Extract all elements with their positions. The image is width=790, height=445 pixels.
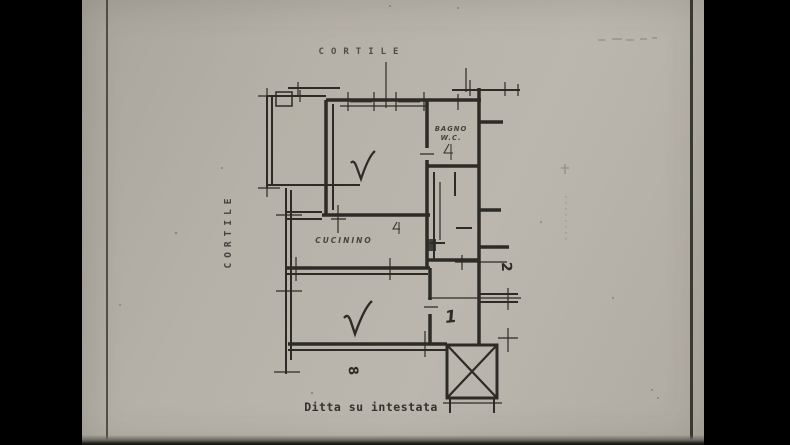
room-number-hall: 1 — [444, 307, 458, 328]
sheet-caption: Ditta su intestata — [304, 400, 438, 414]
scan-noise-smudges — [561, 38, 657, 174]
courtyard-label-side: CORTILE — [223, 193, 234, 268]
checkmark-icon — [344, 301, 372, 334]
tick-marks — [258, 62, 521, 403]
floor-plan-drawing: CORTILE CORTILE CUCININO BAGNO W.C. 1 2 … — [0, 0, 790, 445]
bathroom-label-line2: W.C. — [440, 134, 461, 142]
balcony-corner-square — [276, 92, 292, 106]
walls-medium — [267, 88, 520, 413]
walls-thick — [285, 88, 509, 345]
scanned-photo-canvas: CORTILE CORTILE CUCININO BAGNO W.C. 1 2 … — [0, 0, 790, 445]
courtyard-label-top: CORTILE — [319, 47, 406, 57]
stairwell-cross-icon — [447, 345, 497, 398]
kitchen-label: CUCININO — [315, 236, 373, 245]
bathroom-label-line1: BAGNO — [435, 125, 468, 133]
door-swing-mark — [393, 222, 400, 234]
room-number-bottom: 8 — [345, 366, 361, 376]
checkmark-icon — [351, 151, 375, 179]
scan-noise-dots — [119, 5, 659, 399]
door-swing-mark — [444, 144, 453, 160]
room-number-right: 2 — [498, 262, 514, 272]
hall-door-block — [427, 239, 436, 251]
